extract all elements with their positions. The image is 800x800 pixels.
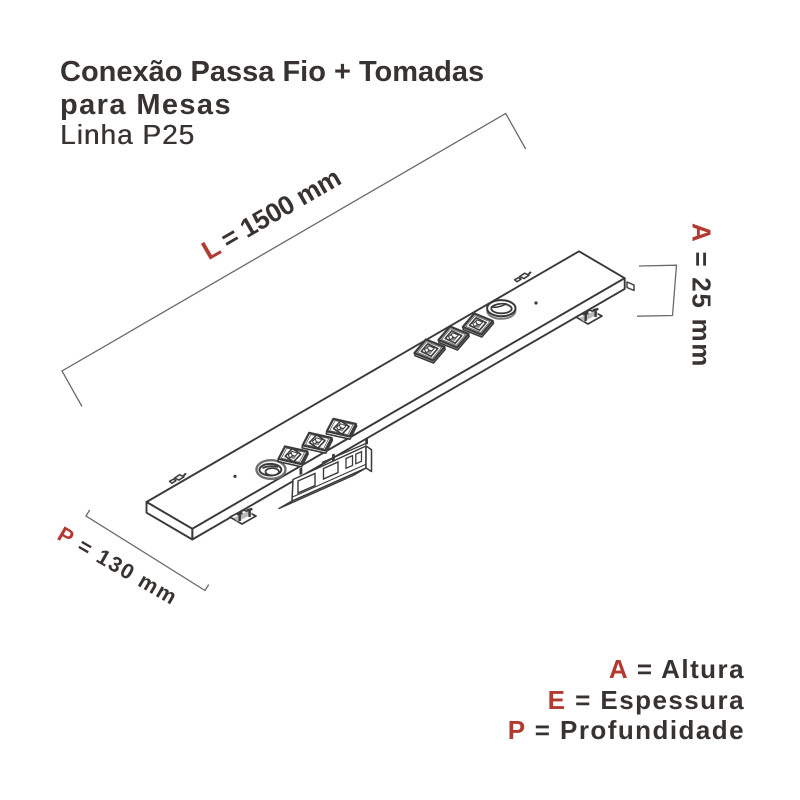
- svg-text:A = 25 mm: A = 25 mm: [687, 223, 717, 368]
